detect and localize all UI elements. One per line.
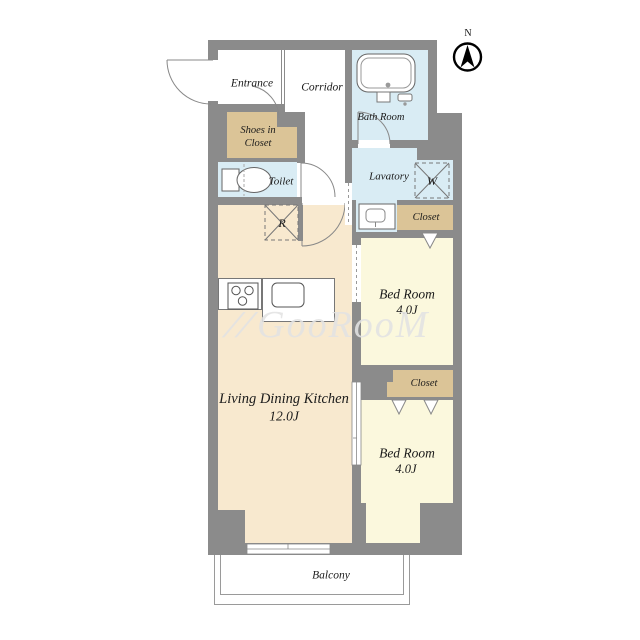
room-corridor-lower: [305, 112, 345, 197]
label-refrigerator-symbol: R: [278, 217, 285, 229]
kitchen-counter-left: [218, 278, 262, 310]
label-shoes-closet-line1: Shoes in: [240, 126, 275, 137]
label-bedroom-lower: Bed Room: [379, 446, 435, 460]
room-closet-lower-step: [387, 382, 393, 397]
label-bath-room: Bath Room: [358, 113, 405, 124]
label-closet-lower: Closet: [411, 379, 438, 390]
label-lavatory: Lavatory: [369, 172, 409, 183]
floor-plan: Entrance Corridor Bath Room Shoes in Clo…: [0, 0, 640, 640]
label-ldk-size: 12.0J: [269, 409, 299, 423]
label-balcony: Balcony: [312, 570, 350, 582]
kitchen-counter-right: [262, 278, 335, 322]
label-bedroom-upper: Bed Room: [379, 287, 435, 301]
label-closet-upper: Closet: [413, 213, 440, 224]
label-bedroom-upper-size: 4.0J: [396, 304, 417, 317]
entrance-door-arc: [167, 60, 211, 104]
ldk-corner-notch: [218, 510, 245, 543]
lavatory-step-wall: [417, 148, 453, 160]
room-bedroom-upper: [361, 238, 453, 365]
label-entrance: Entrance: [231, 78, 273, 90]
north-compass-icon: [454, 44, 481, 71]
label-shoes-closet-line2: Closet: [245, 139, 272, 150]
fridge-niche-stub-wall: [298, 205, 303, 241]
room-ldk: [218, 205, 352, 543]
room-bath: [352, 50, 428, 140]
label-corridor: Corridor: [301, 82, 343, 94]
label-ldk: Living Dining Kitchen: [219, 392, 349, 407]
label-bedroom-lower-size: 4.0J: [395, 463, 416, 476]
room-washbasin-zone: [356, 200, 397, 232]
label-washer-symbol: W: [427, 175, 437, 187]
room-shoes-closet-ext: [277, 127, 297, 158]
label-north: N: [464, 29, 471, 39]
room-bedroom-lower-ext: [366, 503, 420, 543]
label-toilet: Toilet: [269, 177, 294, 188]
